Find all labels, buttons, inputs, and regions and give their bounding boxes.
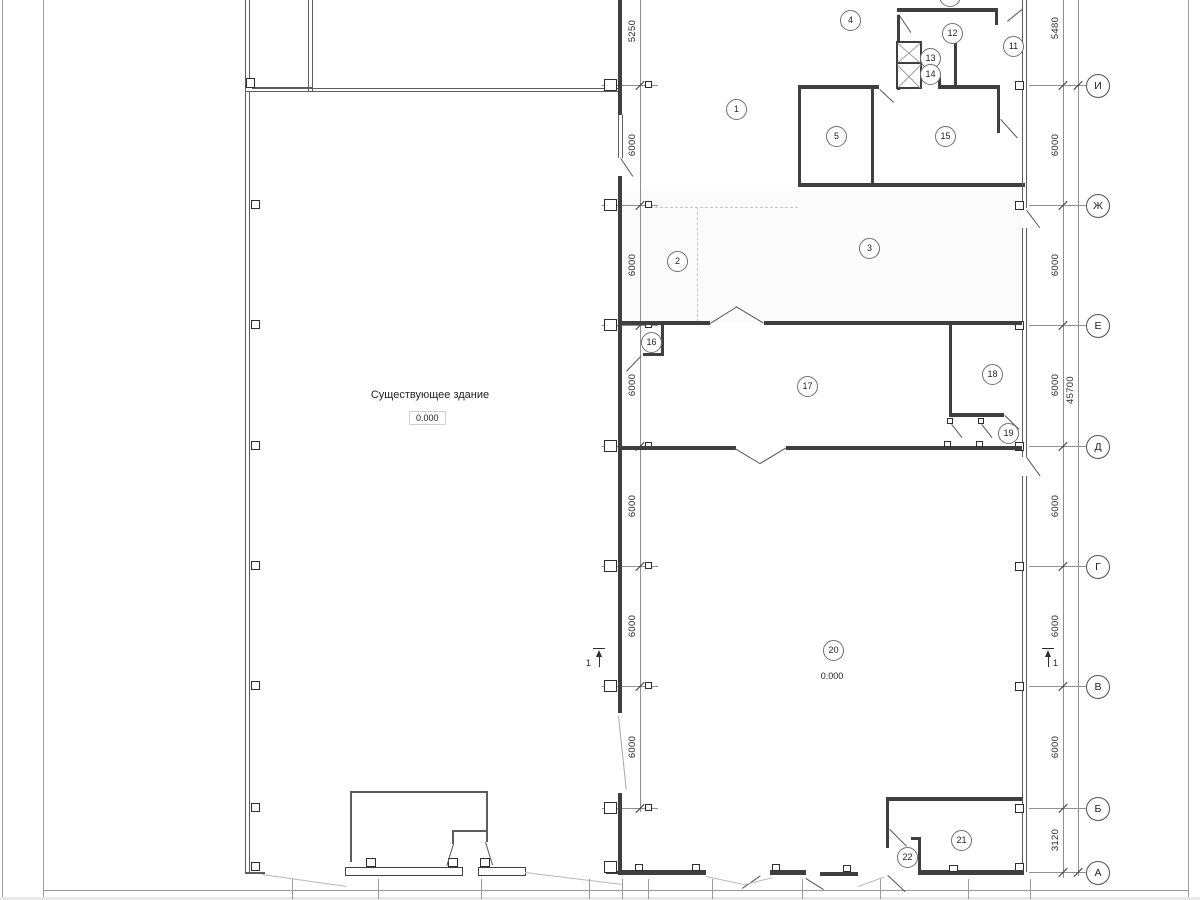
axis-node-square — [645, 804, 652, 811]
column-marker — [251, 441, 260, 450]
wall-segment — [620, 446, 736, 450]
wall-segment — [918, 839, 921, 873]
column-marker — [251, 320, 260, 329]
door-swing — [805, 878, 823, 890]
column-marker — [772, 864, 780, 871]
axis-leader-line — [1029, 808, 1086, 809]
door-jamb — [947, 418, 953, 424]
room-circle: 15 — [935, 126, 956, 147]
elevation-label: 0.000 — [815, 671, 849, 681]
room-circle: 14 — [920, 64, 941, 85]
axis-node-square — [645, 201, 652, 208]
room-circle: 17 — [797, 376, 818, 397]
column-marker — [949, 865, 958, 872]
column-marker — [448, 858, 458, 867]
wall-segment — [249, 0, 250, 87]
column-marker — [604, 861, 617, 873]
dimension-label: 6000 — [627, 237, 639, 293]
dimension-label: 6000 — [627, 478, 639, 534]
door-swing — [981, 424, 992, 438]
door-swing — [1000, 119, 1017, 138]
axis-node-square — [645, 682, 652, 689]
wall-segment — [886, 799, 889, 848]
axis-circle: И — [1086, 74, 1110, 98]
room-circle-partial — [939, 0, 961, 7]
wall-segment — [252, 88, 618, 89]
axis-leader-line — [1029, 446, 1086, 447]
axis-circle: В — [1086, 675, 1110, 699]
room-circle: 12 — [942, 23, 963, 44]
column-marker — [480, 858, 490, 867]
dimension-label: 6000 — [1050, 357, 1062, 413]
door-swing — [1007, 9, 1022, 22]
opening-leaf-line — [618, 716, 627, 790]
section-marker-label: 1 — [1053, 658, 1058, 668]
axis-circle: Е — [1086, 314, 1110, 338]
door-swing — [879, 89, 894, 103]
wall-segment — [764, 321, 1022, 325]
dimension-label: 6000 — [1050, 598, 1062, 654]
room-circle: 22 — [897, 847, 918, 868]
wall-segment — [1026, 228, 1027, 457]
wall-segment — [643, 353, 664, 356]
witness-line — [712, 879, 713, 899]
dimension-label: 3120 — [1050, 812, 1062, 868]
door-swing — [951, 424, 962, 438]
wall-segment — [618, 176, 622, 713]
dimension-label: 6000 — [627, 117, 639, 173]
axis-leader-line — [1029, 325, 1086, 326]
dimension-label: 5480 — [1050, 0, 1062, 56]
axis-node-square — [645, 562, 652, 569]
dimension-line — [1063, 0, 1064, 878]
opening-chevron — [734, 448, 760, 464]
room-circle: 18 — [982, 364, 1003, 385]
wall-segment — [312, 0, 313, 91]
wall-segment — [886, 797, 1023, 801]
dimension-line — [640, 0, 641, 812]
room-circle: 16 — [641, 332, 662, 353]
axis-leader-line — [1029, 205, 1086, 206]
wall-segment — [949, 413, 1004, 417]
dashed-boundary — [697, 207, 698, 322]
dimension-label-total: 45700 — [1065, 362, 1077, 418]
column-marker — [604, 319, 617, 331]
ground-line — [43, 890, 1189, 891]
wall-segment — [308, 0, 309, 91]
wall-segment — [1022, 228, 1023, 457]
elevation-label: 0.000 — [409, 411, 446, 425]
column-marker — [1015, 682, 1024, 691]
dimension-line — [1078, 0, 1079, 876]
wall-segment — [897, 8, 998, 12]
witness-line — [622, 879, 623, 899]
dimension-label: 5250 — [627, 3, 639, 59]
door-swing — [1026, 210, 1040, 228]
section-marker-bar — [593, 648, 605, 649]
witness-line — [648, 879, 649, 899]
wall-segment — [618, 0, 622, 115]
axis-circle: А — [1086, 861, 1110, 885]
section-marker-line — [1048, 655, 1049, 667]
wall-segment — [798, 89, 801, 186]
witness-line — [802, 879, 803, 899]
column-marker — [843, 865, 851, 872]
floor-plan-sheet: И Ж Е Д Г В Б А 5250 6000 6000 6000 6000… — [0, 0, 1200, 900]
dimension-label: 6000 — [627, 598, 639, 654]
building-label: Существующее здание — [355, 389, 505, 401]
witness-line — [292, 879, 293, 899]
room-circle: 3 — [859, 238, 880, 259]
witness-line — [589, 879, 590, 899]
window-line — [622, 115, 623, 158]
dimension-label: 6000 — [627, 719, 639, 775]
room-circle: 19 — [998, 423, 1019, 444]
column-marker — [635, 864, 643, 871]
wall-segment — [949, 325, 952, 417]
witness-line — [968, 879, 969, 899]
wall-segment — [452, 830, 454, 844]
wall-segment — [350, 791, 352, 862]
axis-circle: Б — [1086, 797, 1110, 821]
wall-segment — [798, 85, 879, 89]
wall-segment — [954, 43, 957, 88]
wall-segment — [918, 870, 1024, 875]
section-marker-bar — [1042, 648, 1054, 649]
opening-chevron — [760, 448, 786, 464]
wall-segment — [350, 791, 488, 793]
axis-node-square — [645, 81, 652, 88]
column-marker — [1015, 562, 1024, 571]
witness-line — [880, 879, 881, 899]
wall-segment — [249, 91, 250, 873]
witness-line — [1030, 879, 1031, 899]
column-marker — [251, 681, 260, 690]
wall-segment — [786, 446, 1022, 450]
column-marker — [251, 200, 260, 209]
axis-circle: Ж — [1086, 194, 1110, 218]
room-circle: 4 — [840, 10, 861, 31]
axis-circle: Д — [1086, 435, 1110, 459]
wall-segment — [820, 872, 858, 876]
witness-line — [378, 879, 379, 899]
wall-segment — [245, 91, 246, 873]
column-marker — [251, 803, 260, 812]
dimension-label: 6000 — [627, 357, 639, 413]
dimension-label: 6000 — [1050, 719, 1062, 775]
column-marker — [251, 862, 260, 871]
column-marker — [1015, 81, 1024, 90]
door-jamb — [944, 441, 951, 447]
door-swing — [898, 14, 911, 33]
column-marker — [604, 560, 617, 572]
room-circle: 11 — [1003, 36, 1024, 57]
column-marker — [692, 864, 700, 871]
witness-line — [481, 879, 482, 899]
dimension-label: 6000 — [1050, 117, 1062, 173]
room-circle: 20 — [823, 640, 844, 661]
column-marker — [604, 199, 617, 211]
column-marker — [1015, 201, 1024, 210]
room-circle: 5 — [826, 126, 847, 147]
section-marker-label: 1 — [586, 658, 591, 668]
room-circle: 1 — [726, 99, 747, 120]
column-marker — [251, 561, 260, 570]
door-jamb — [976, 441, 983, 447]
room-circle: 2 — [667, 251, 688, 272]
wall-segment — [798, 183, 1025, 187]
sheet-frame-line — [1188, 0, 1189, 900]
dashed-boundary — [645, 207, 798, 208]
window-line — [618, 115, 619, 158]
column-marker — [604, 680, 617, 692]
door-swing — [1026, 457, 1040, 476]
door-swing — [889, 829, 907, 847]
wall-segment — [1026, 0, 1027, 208]
wall-segment — [618, 793, 622, 873]
dimension-label: 6000 — [1050, 478, 1062, 534]
wall-segment — [252, 91, 618, 92]
column-marker — [1015, 804, 1024, 813]
column-marker — [604, 440, 617, 452]
wall-segment — [997, 85, 1000, 133]
section-marker-line — [599, 655, 600, 667]
wall-segment — [1022, 0, 1023, 208]
column-marker — [366, 858, 376, 867]
column-marker — [604, 79, 617, 91]
wall-segment — [995, 10, 998, 25]
wall-segment — [620, 321, 710, 325]
terrain-line — [262, 874, 346, 887]
porch-slab — [478, 867, 526, 876]
axis-leader-line — [1029, 686, 1086, 687]
column-marker — [604, 802, 617, 814]
terrain-line — [745, 877, 772, 885]
column-marker — [246, 78, 255, 88]
wall-segment — [486, 791, 488, 842]
room-circle: 21 — [951, 830, 972, 851]
axis-leader-line — [1029, 566, 1086, 567]
porch-slab — [345, 867, 463, 876]
sheet-frame-line — [2, 0, 3, 900]
wall-segment — [871, 89, 874, 186]
wall-segment — [938, 85, 1000, 89]
sheet-frame-line — [43, 0, 44, 900]
wall-segment — [1026, 476, 1027, 872]
wall-segment — [452, 830, 488, 832]
axis-circle: Г — [1086, 555, 1110, 579]
dimension-label: 6000 — [1050, 237, 1062, 293]
